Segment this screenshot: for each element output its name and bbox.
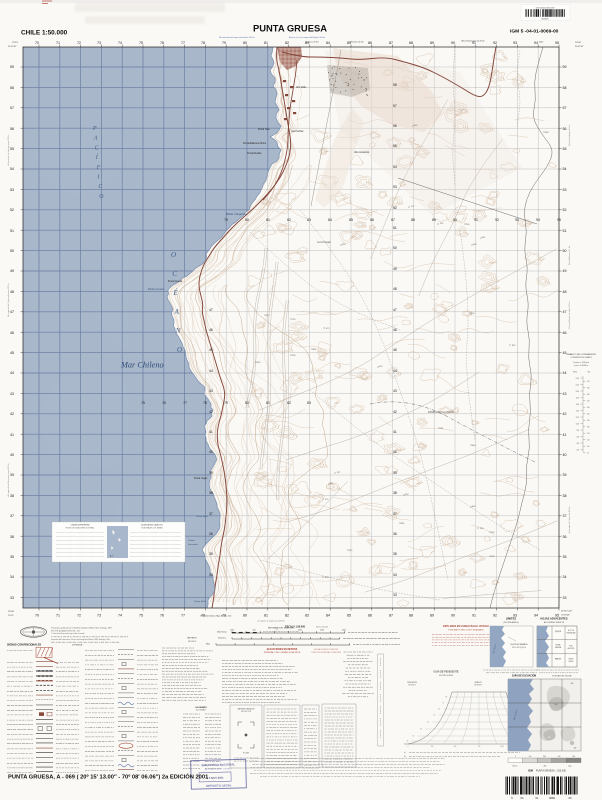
svg-text:92: 92 xyxy=(495,218,499,222)
svg-text:88: 88 xyxy=(409,614,413,618)
svg-text:PECES DE LEVALLERES NON REAL: PECES DE LEVALLERES NON REAL xyxy=(66,526,95,529)
svg-text:54: 54 xyxy=(563,167,567,171)
svg-text:Al noroeste del mapa se locali: Al noroeste del mapa se localiza 25 Km xyxy=(219,36,254,39)
svg-text:GORDO: GORDO xyxy=(568,661,574,663)
svg-text:MOT N°B, ALLAMA CCHIN, OM - 20: MOT N°B, ALLAMA CCHIN, OM - 2017 xyxy=(51,629,80,632)
svg-text:Verticle 2,5 Km: Verticle 2,5 Km xyxy=(350,41,364,44)
svg-text:Preparado y publicado por el I: Preparado y publicado por el Instituto G… xyxy=(51,627,112,630)
svg-text:1 pie = 0.3048 m: 1 pie = 0.3048 m xyxy=(574,365,589,367)
svg-text:Kilómetros: Kilómetros xyxy=(218,637,226,640)
svg-text:37: 37 xyxy=(10,514,14,518)
svg-text:55: 55 xyxy=(393,144,397,148)
svg-text:700: 700 xyxy=(548,737,551,739)
svg-text:48: 48 xyxy=(563,290,567,294)
svg-text:40: 40 xyxy=(563,453,567,457)
svg-text:250: 250 xyxy=(431,746,434,748)
svg-text:73: 73 xyxy=(97,41,101,45)
svg-text:70: 70 xyxy=(35,614,39,618)
svg-text:100: 100 xyxy=(529,756,532,758)
svg-text:56: 56 xyxy=(10,127,14,131)
svg-text:IGM 5 -04-01-0069-00: IGM 5 -04-01-0069-00 xyxy=(510,29,559,35)
svg-text:92: 92 xyxy=(493,614,497,618)
svg-text:GLOSSARY: GLOSSARY xyxy=(196,709,207,712)
svg-text:42: 42 xyxy=(563,412,567,416)
svg-text:70°15': 70°15' xyxy=(12,42,19,44)
svg-text:43: 43 xyxy=(209,389,213,393)
svg-text:46: 46 xyxy=(393,328,397,332)
svg-text:42: 42 xyxy=(10,412,14,416)
svg-text:39: 39 xyxy=(209,471,213,475)
svg-text:85: 85 xyxy=(349,218,353,222)
svg-text:44: 44 xyxy=(393,369,397,373)
svg-text:Cerro Dragón: Cerro Dragón xyxy=(317,241,332,244)
svg-text:34: 34 xyxy=(209,573,213,577)
svg-text:41: 41 xyxy=(563,433,567,437)
svg-text:94: 94 xyxy=(534,41,538,45)
svg-text:52: 52 xyxy=(393,206,397,210)
svg-text:79: 79 xyxy=(224,401,228,405)
svg-text:95: 95 xyxy=(555,41,559,45)
svg-text:90: 90 xyxy=(451,41,455,45)
svg-text:1000: 1000 xyxy=(500,746,504,748)
svg-text:640: 640 xyxy=(587,388,590,390)
svg-text:91: 91 xyxy=(474,218,478,222)
svg-text:700: 700 xyxy=(587,381,590,383)
svg-text:44: 44 xyxy=(563,371,567,375)
svg-text:49: 49 xyxy=(563,269,567,273)
svg-text:45: 45 xyxy=(393,348,397,352)
svg-text:A DIBUJARSE CADA UNO: A DIBUJARSE CADA UNO xyxy=(141,524,163,527)
svg-text:37: 37 xyxy=(393,512,397,516)
svg-text:59: 59 xyxy=(563,65,567,69)
svg-text:52: 52 xyxy=(563,208,567,212)
svg-text:74: 74 xyxy=(118,41,122,45)
svg-text:Caleta Molle: Caleta Molle xyxy=(194,600,206,603)
svg-text:46: 46 xyxy=(563,331,567,335)
svg-text:50: 50 xyxy=(563,249,567,253)
svg-text:47: 47 xyxy=(209,308,213,312)
svg-text:35: 35 xyxy=(563,555,567,559)
svg-text:86: 86 xyxy=(368,41,372,45)
svg-text:48: 48 xyxy=(393,287,397,291)
svg-text:GUÍA DE PENDIENTE: GUÍA DE PENDIENTE xyxy=(433,671,458,674)
svg-text:LÍNEAS REPRESENTA: LÍNEAS REPRESENTA xyxy=(71,524,91,527)
svg-text:GUÍA DE ELEVACIÓN: GUÍA DE ELEVACIÓN xyxy=(512,675,537,678)
svg-text:200: 200 xyxy=(576,450,579,452)
svg-text:METRES: METRES xyxy=(188,641,197,643)
svg-text:45: 45 xyxy=(10,351,14,355)
svg-text:55: 55 xyxy=(434,715,436,717)
svg-text:0: 0 xyxy=(277,630,278,632)
svg-text:C: C xyxy=(98,184,102,190)
svg-text:80: 80 xyxy=(243,41,247,45)
svg-text:94: 94 xyxy=(534,614,538,618)
svg-text:42: 42 xyxy=(393,410,397,414)
svg-text:2000: 2000 xyxy=(320,630,324,632)
svg-text:Sarmenta: Sarmenta xyxy=(188,543,198,546)
svg-text:36: 36 xyxy=(393,532,397,536)
svg-text:82: 82 xyxy=(285,614,289,618)
svg-text:Punta Yape: Punta Yape xyxy=(258,128,271,131)
svg-text:79: 79 xyxy=(224,218,228,222)
svg-text:N: N xyxy=(175,327,181,335)
svg-text:500: 500 xyxy=(454,746,457,748)
svg-text:900: 900 xyxy=(572,756,575,758)
svg-text:34: 34 xyxy=(563,575,567,579)
svg-text:Punta Gruesa: Punta Gruesa xyxy=(168,280,183,283)
svg-text:CHILE 1:50.000: CHILE 1:50.000 xyxy=(21,30,68,37)
svg-text:93: 93 xyxy=(515,218,519,222)
svg-text:74: 74 xyxy=(118,614,122,618)
svg-text:ADJOINING SHEETS: ADJOINING SHEETS xyxy=(544,621,565,624)
svg-text:81: 81 xyxy=(264,614,268,618)
svg-text:33: 33 xyxy=(393,593,397,597)
svg-text:0: 0 xyxy=(515,756,516,758)
svg-text:900: 900 xyxy=(571,683,574,685)
svg-text:38: 38 xyxy=(10,494,14,498)
svg-text:44: 44 xyxy=(209,369,213,373)
svg-text:84: 84 xyxy=(328,218,332,222)
svg-text:GRADOS: GRADOS xyxy=(474,681,482,684)
svg-text:34: 34 xyxy=(393,573,397,577)
svg-text:500: 500 xyxy=(558,756,561,758)
svg-text:33: 33 xyxy=(10,596,14,600)
svg-text:89: 89 xyxy=(432,218,436,222)
svg-text:20°30': 20°30' xyxy=(8,611,15,613)
svg-text:GRÁFICO DE CONVERSIÓN: GRÁFICO DE CONVERSIÓN xyxy=(567,353,596,356)
svg-text:81: 81 xyxy=(266,218,270,222)
svg-text:39: 39 xyxy=(563,473,567,477)
svg-text:Mina Ballenera 21 Km: Mina Ballenera 21 Km xyxy=(569,245,571,265)
svg-text:58: 58 xyxy=(563,86,567,90)
svg-text:P: P xyxy=(92,126,97,132)
svg-text:89: 89 xyxy=(430,41,434,45)
svg-text:71: 71 xyxy=(56,614,60,618)
svg-text:76: 76 xyxy=(160,41,164,45)
svg-text:53: 53 xyxy=(393,185,397,189)
svg-text:76: 76 xyxy=(162,401,166,405)
svg-text:100: 100 xyxy=(587,446,590,448)
svg-text:Mina Huantajaya 20,5 Km: Mina Huantajaya 20,5 Km xyxy=(461,40,484,43)
svg-text:IQUIQUE: IQUIQUE xyxy=(555,631,561,633)
svg-text:DEL SECTOR: DEL SECTOR xyxy=(241,711,252,713)
svg-text:78: 78 xyxy=(203,401,207,405)
svg-text:48: 48 xyxy=(10,290,14,294)
svg-text:42: 42 xyxy=(209,410,213,414)
svg-text:71: 71 xyxy=(56,41,60,45)
svg-text:75: 75 xyxy=(139,614,143,618)
svg-text:Impresión del Laboratorio Técn: Impresión del Laboratorio Técnico del Ge… xyxy=(51,638,110,641)
svg-text:3000: 3000 xyxy=(342,630,346,632)
svg-text:1 metro = 3.28 pies: 1 metro = 3.28 pies xyxy=(573,361,589,364)
svg-text:43: 43 xyxy=(393,389,397,393)
svg-text:87: 87 xyxy=(389,614,393,618)
svg-text:38: 38 xyxy=(209,491,213,495)
svg-text:400: 400 xyxy=(576,443,579,445)
svg-text:34: 34 xyxy=(10,575,14,579)
svg-text:94: 94 xyxy=(536,218,540,222)
svg-text:46: 46 xyxy=(209,328,213,332)
svg-text:A: A xyxy=(174,308,180,316)
svg-text:NON-REALES LOS TIARES: NON-REALES LOS TIARES xyxy=(141,526,163,529)
svg-text:73: 73 xyxy=(97,614,101,618)
svg-text:Punta Piedras: Punta Piedras xyxy=(247,152,262,155)
svg-text:Las Peñitas: Las Peñitas xyxy=(291,130,304,133)
svg-text:400: 400 xyxy=(574,748,577,750)
svg-text:47: 47 xyxy=(10,310,14,314)
svg-text:2000: 2000 xyxy=(576,391,580,393)
svg-text:88: 88 xyxy=(411,218,415,222)
svg-text:Está en el sur el mapa del Reg: Está en el sur el mapa del Región 50 Km xyxy=(289,36,326,39)
svg-text:580: 580 xyxy=(587,394,590,396)
svg-text:95: 95 xyxy=(557,218,561,222)
svg-text:70°00'06″: 70°00'06″ xyxy=(561,615,570,617)
svg-text:57: 57 xyxy=(10,106,14,110)
svg-text:75: 75 xyxy=(442,703,444,705)
svg-text:280: 280 xyxy=(587,427,590,429)
svg-text:Punta Yayes: Punta Yayes xyxy=(194,477,208,480)
svg-text:51: 51 xyxy=(10,229,14,233)
svg-text:Iquique 2,5 Km: Iquique 2,5 Km xyxy=(305,42,319,44)
svg-text:LEYENDA: LEYENDA xyxy=(72,643,83,646)
svg-text:Mar Chileno: Mar Chileno xyxy=(120,361,164,370)
svg-text:Miles Metros: Miles Metros xyxy=(217,631,227,634)
svg-text:57: 57 xyxy=(563,106,567,110)
svg-text:47: 47 xyxy=(393,308,397,312)
svg-text:Caleta: Caleta xyxy=(188,539,195,542)
svg-text:38: 38 xyxy=(563,494,567,498)
svg-text:80: 80 xyxy=(243,614,247,618)
svg-text:55: 55 xyxy=(563,147,567,151)
svg-text:1 5 NOV 2001: 1 5 NOV 2001 xyxy=(207,776,225,780)
svg-text:37: 37 xyxy=(209,512,213,516)
svg-text:Al segundo del Empalme para 25: Al segundo del Empalme para 25 Km xyxy=(7,463,10,496)
svg-text:ELEVACIONES IN METRE: ELEVACIONES IN METRE xyxy=(314,648,339,651)
svg-text:1000: 1000 xyxy=(298,630,302,632)
svg-text:81: 81 xyxy=(266,401,270,405)
svg-text:79: 79 xyxy=(222,41,226,45)
svg-text:41: 41 xyxy=(10,433,14,437)
svg-text:78: 78 xyxy=(201,41,205,45)
svg-text:88: 88 xyxy=(409,41,413,45)
svg-text:© Derechos Reservados para tod: © Derechos Reservados para todo el mundo xyxy=(51,632,84,635)
svg-text:52: 52 xyxy=(10,208,14,212)
svg-text:80: 80 xyxy=(245,218,249,222)
svg-text:56: 56 xyxy=(563,127,567,131)
svg-text:49: 49 xyxy=(393,267,397,271)
svg-text:1600: 1600 xyxy=(576,404,580,406)
svg-text:33: 33 xyxy=(563,596,567,600)
svg-text:83: 83 xyxy=(307,218,311,222)
svg-text:51: 51 xyxy=(563,229,567,233)
svg-text:DEPOSITO LEGAL: DEPOSITO LEGAL xyxy=(206,783,232,788)
svg-text:160: 160 xyxy=(587,440,590,442)
svg-text:300: 300 xyxy=(543,756,546,758)
svg-text:2200: 2200 xyxy=(576,385,580,387)
svg-text:85: 85 xyxy=(347,614,351,618)
svg-text:460: 460 xyxy=(587,407,590,409)
svg-text:90: 90 xyxy=(453,218,457,222)
svg-text:ELEVATION GUIDE: ELEVATION GUIDE xyxy=(552,675,572,678)
svg-text:PERCENT: PERCENT xyxy=(408,685,416,687)
svg-text:220: 220 xyxy=(587,433,590,435)
svg-text:PENDIENTE: PENDIENTE xyxy=(407,682,418,684)
svg-text:Alto Hospicio: Alto Hospicio xyxy=(354,150,370,154)
svg-text:72: 72 xyxy=(77,614,81,618)
svg-text:37: 37 xyxy=(563,514,567,518)
svg-text:91: 91 xyxy=(472,614,476,618)
svg-text:Alto Molle: Alto Molle xyxy=(296,86,307,89)
svg-text:35: 35 xyxy=(209,552,213,556)
svg-text:F: F xyxy=(96,165,101,171)
svg-text:1000: 1000 xyxy=(230,630,234,632)
svg-text:50: 50 xyxy=(393,246,397,250)
svg-text:CONTOUR INTERVAL 50 METRES: CONTOUR INTERVAL 50 METRES xyxy=(311,651,342,654)
svg-text:Punta Ballenera Chica: Punta Ballenera Chica xyxy=(243,142,267,145)
svg-text:38: 38 xyxy=(393,491,397,495)
svg-text:36: 36 xyxy=(563,535,567,539)
svg-text:75: 75 xyxy=(141,401,145,405)
svg-text:89: 89 xyxy=(430,614,434,618)
svg-text:54: 54 xyxy=(10,167,14,171)
svg-text:400: 400 xyxy=(587,414,590,416)
svg-text:O: O xyxy=(171,251,176,259)
svg-text:GLOSARIO: GLOSARIO xyxy=(195,706,207,709)
svg-text:80: 80 xyxy=(245,401,249,405)
svg-text:70: 70 xyxy=(35,41,39,45)
svg-text:C: C xyxy=(172,270,177,278)
svg-text:PUNTA GRUESA: PUNTA GRUESA xyxy=(253,23,327,34)
svg-text:IGM 101024 MIC/OMI: IGM 101024 MIC/OMI xyxy=(536,7,555,9)
svg-text:35: 35 xyxy=(393,552,397,556)
svg-text:35: 35 xyxy=(420,729,422,731)
svg-text:44: 44 xyxy=(10,371,14,375)
svg-text:520: 520 xyxy=(587,401,590,403)
svg-text:76: 76 xyxy=(160,614,164,618)
svg-text:43: 43 xyxy=(563,392,567,396)
svg-text:49: 49 xyxy=(10,269,14,273)
svg-text:Recorrido Nuevo Riga Escala 1:: Recorrido Nuevo Riga Escala 1:25 xyxy=(201,615,233,617)
svg-text:A: A xyxy=(93,136,98,142)
svg-text:70°15': 70°15' xyxy=(8,615,14,617)
svg-text:800: 800 xyxy=(576,430,579,432)
svg-text:77: 77 xyxy=(181,614,185,618)
svg-text:39: 39 xyxy=(10,473,14,477)
svg-text:41: 41 xyxy=(393,430,397,434)
svg-text:43: 43 xyxy=(10,392,14,396)
svg-text:(BOUNDARIES): (BOUNDARIES) xyxy=(503,621,518,624)
svg-text:87: 87 xyxy=(391,218,395,222)
svg-text:CONVERSION GRAPH: CONVERSION GRAPH xyxy=(570,356,592,359)
svg-text:58: 58 xyxy=(10,86,14,90)
svg-text:55: 55 xyxy=(10,147,14,151)
svg-text:86: 86 xyxy=(370,218,374,222)
svg-text:É: É xyxy=(172,289,178,297)
svg-text:HOJAS ADYACENTES: HOJAS ADYACENTES xyxy=(540,616,567,620)
svg-text:1200: 1200 xyxy=(576,417,580,419)
svg-text:82: 82 xyxy=(287,401,291,405)
svg-text:85: 85 xyxy=(446,697,448,699)
svg-text:53: 53 xyxy=(563,188,567,192)
svg-text:59: 59 xyxy=(10,65,14,69)
svg-text:al seguro al región para (50%): al seguro al región para (50%) xyxy=(258,621,285,623)
svg-text:8844280: 8844280 xyxy=(542,19,549,21)
svg-text:Caleta Yayes: Caleta Yayes xyxy=(196,515,208,518)
svg-text:500: 500 xyxy=(555,704,558,706)
svg-text:41: 41 xyxy=(209,430,213,434)
svg-text:340: 340 xyxy=(587,420,590,422)
svg-text:Millas: Millas xyxy=(206,644,210,646)
svg-text:A 2°: A 2° xyxy=(110,555,114,558)
svg-text:46: 46 xyxy=(10,331,14,335)
svg-text:ESCALA 1:50.000: ESCALA 1:50.000 xyxy=(285,625,306,628)
svg-text:PUNTA GRUESA, A - 069 ( 20º: PUNTA GRUESA, A - 069 ( 20º 15′ 13.00″ -… xyxy=(8,773,209,781)
svg-text:83: 83 xyxy=(307,401,311,405)
svg-text:50: 50 xyxy=(10,249,14,253)
svg-text:N° 0069: N° 0069 xyxy=(243,753,249,755)
svg-text:DEGREES: DEGREES xyxy=(474,685,482,687)
svg-text:86: 86 xyxy=(368,614,372,618)
svg-text:84: 84 xyxy=(326,614,330,618)
svg-text:25: 25 xyxy=(413,736,415,738)
svg-text:36: 36 xyxy=(209,532,213,536)
svg-text:77: 77 xyxy=(183,401,187,405)
svg-text:1400: 1400 xyxy=(576,411,580,413)
svg-text:0069: 0069 xyxy=(549,796,555,800)
svg-text:15: 15 xyxy=(407,741,409,743)
svg-text:INTERVALO DE CURVAS 50 METROS: INTERVALO DE CURVAS 50 METROS xyxy=(264,651,301,654)
svg-text:47: 47 xyxy=(563,310,567,314)
svg-text:1000: 1000 xyxy=(576,424,580,426)
svg-text:36: 36 xyxy=(10,535,14,539)
svg-text:84: 84 xyxy=(326,41,330,45)
svg-text:1800: 1800 xyxy=(576,398,580,400)
svg-text:SLOPE GUIDE: SLOPE GUIDE xyxy=(439,675,454,677)
svg-text:PIES: PIES xyxy=(573,372,577,374)
svg-text:57: 57 xyxy=(393,104,397,108)
svg-text:90: 90 xyxy=(451,614,455,618)
svg-text:20°12'30″: 20°12'30″ xyxy=(8,46,17,48)
svg-text:40: 40 xyxy=(209,450,213,454)
svg-text:SOL 1:10.240: SOL 1:10.240 xyxy=(316,626,328,628)
svg-text:PROV. DE IQUIQUE: PROV. DE IQUIQUE xyxy=(512,647,526,649)
svg-text:C: C xyxy=(95,145,99,151)
svg-text:83: 83 xyxy=(305,614,309,618)
svg-text:THIS MAP IS RED LIGHT READABLE: THIS MAP IS RED LIGHT READABLE xyxy=(448,629,484,632)
svg-text:75: 75 xyxy=(139,41,143,45)
svg-text:Bahía Chiquinata: Bahía Chiquinata xyxy=(226,212,248,216)
svg-text:82: 82 xyxy=(287,218,291,222)
svg-text:81: 81 xyxy=(264,41,268,45)
svg-text:SIGNOS CONVENCIONALES: SIGNOS CONVENCIONALES xyxy=(7,643,41,646)
svg-text:40: 40 xyxy=(587,453,589,455)
svg-text:500: 500 xyxy=(253,630,256,632)
svg-text:54: 54 xyxy=(393,165,397,169)
svg-text:20°30' 5.60″: 20°30' 5.60″ xyxy=(561,611,572,613)
svg-text:Al segundo de Quebrada para 25: Al segundo de Quebrada para 25 Km xyxy=(7,283,10,316)
svg-text:93: 93 xyxy=(513,41,517,45)
svg-text:20°12'30″: 20°12'30″ xyxy=(575,46,584,48)
svg-text:Pozo al Monte de Salar 27 Km: Pozo al Monte de Salar 27 Km xyxy=(568,301,571,328)
svg-text:ELEVACIONES EN METROS: ELEVACIONES EN METROS xyxy=(267,648,298,651)
svg-text:2400: 2400 xyxy=(576,378,580,380)
svg-text:METROS: METROS xyxy=(187,637,197,639)
svg-text:Al noroeste de Iquique para 25: Al noroeste de Iquique para 25 Km xyxy=(7,134,10,165)
svg-text:45: 45 xyxy=(427,722,429,724)
svg-text:Punta Gruesa: Punta Gruesa xyxy=(147,288,164,291)
svg-text:70°00': 70°00' xyxy=(575,42,582,44)
svg-text:45: 45 xyxy=(209,348,213,352)
